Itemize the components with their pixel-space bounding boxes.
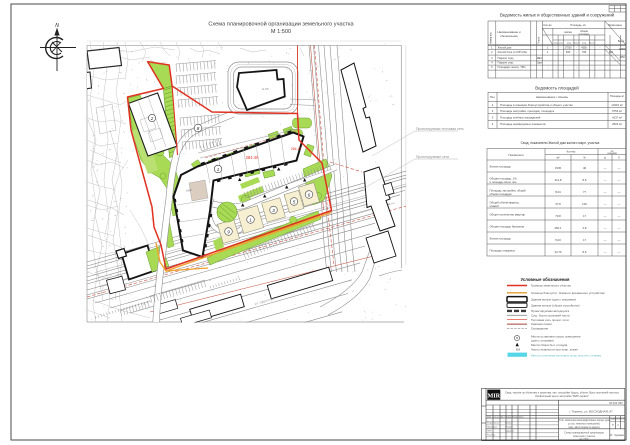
svg-text:Ограждение: Ограждение: [531, 327, 549, 331]
svg-text:211,8: 211,8: [555, 178, 562, 182]
svg-text:Проектируемая автодорога: Проектируемая автодорога: [531, 309, 569, 313]
svg-text:Листов: Листов: [619, 419, 626, 421]
svg-text:06 019 ПЗУ: 06 019 ПЗУ: [609, 401, 623, 405]
svg-text:17: 17: [583, 238, 587, 242]
svg-text:Площадь нормируемых элементов: Площадь нормируемых элементов: [500, 122, 546, 126]
svg-text:—: —: [618, 202, 621, 206]
svg-text:79,8: 79,8: [555, 214, 561, 218]
svg-text:—: —: [604, 226, 607, 230]
svg-text:5: 5: [293, 199, 296, 204]
svg-text:37,8: 37,8: [555, 202, 561, 206]
svg-text:—: —: [604, 166, 607, 170]
svg-text:Свод. чертёж по объектам и про: Свод. чертёж по объектам и проектам, кап…: [505, 391, 619, 395]
svg-text:общ: общ: [582, 43, 586, 45]
svg-text:Площадь зелёных насаждений: Площадь зелёных насаждений: [500, 116, 541, 120]
svg-text:Жилой дом: Жилой дом: [498, 45, 512, 49]
svg-text:-: -: [556, 51, 557, 54]
svg-text:Здания жилые (дом с секциями): Здания жилые (дом с секциями): [531, 298, 576, 302]
svg-text:Всего: Всего: [574, 43, 581, 45]
svg-text:ГИП: ГИП: [487, 431, 492, 433]
svg-text:Площадки технич. ТБО: Площадки технич. ТБО: [498, 65, 526, 69]
svg-text:—: —: [604, 238, 607, 242]
svg-text:М 1:500: М 1:500: [580, 438, 589, 441]
svg-text:2: 2: [150, 116, 154, 121]
svg-text:8: 8: [197, 126, 200, 131]
svg-text:Показатели: Показатели: [508, 153, 523, 157]
svg-text:Примечание: Примечание: [608, 24, 623, 27]
svg-text:объём площадок: объём площадок: [490, 192, 513, 196]
svg-text:Площадь м²: Площадь м²: [610, 95, 624, 98]
svg-text:—: —: [604, 190, 607, 194]
svg-text:Профильный центр застройки "МИ: Профильный центр застройки "МИР-сервис": [535, 394, 589, 398]
svg-text:5,03: 5,03: [555, 238, 561, 242]
svg-text:Н-65: Н-65: [262, 87, 269, 91]
svg-text:Граница благоустр. Элемент вре: Граница благоустр. Элемент временного ус…: [531, 291, 605, 295]
svg-text:Петров: Петров: [505, 427, 513, 429]
svg-text:-: -: [576, 66, 577, 69]
svg-text:Место получения почтовых услуг: Место получения почтовых услуг, высотн. …: [531, 353, 601, 357]
svg-text:Ведомость площадей: Ведомость площадей: [535, 86, 579, 91]
svg-text:-: -: [561, 66, 562, 69]
svg-text:77: 77: [583, 190, 587, 194]
svg-text:г. Тюмень, ул. ВОСХОДНАЯ, 87: г. Тюмень, ул. ВОСХОДНАЯ, 87: [569, 410, 613, 414]
svg-text:-: -: [592, 46, 593, 49]
svg-text:102: 102: [582, 202, 587, 206]
svg-text:6754 м²: 6754 м²: [612, 109, 622, 113]
svg-text:Площадь кладовых: Площадь кладовых: [490, 249, 516, 253]
svg-text:и площадь всего поз.: и площадь всего поз.: [490, 180, 518, 184]
svg-text:—: —: [604, 202, 607, 206]
svg-text:34,76: 34,76: [555, 250, 562, 254]
svg-text:Наименование / объемы: Наименование / объемы: [536, 95, 568, 99]
svg-text:общ: общ: [554, 43, 558, 45]
svg-text:1545: 1545: [555, 166, 562, 170]
svg-text:Жилая площадь: Жилая площадь: [490, 165, 512, 169]
svg-text:—: —: [604, 214, 607, 218]
svg-text:-: -: [547, 66, 548, 69]
svg-text:-: -: [561, 51, 562, 54]
svg-text:1: 1: [249, 217, 252, 222]
svg-text:Проектируемые сети: Проектируемые сети: [416, 155, 449, 159]
svg-text:MIR: MIR: [487, 393, 500, 400]
svg-text:—: —: [618, 250, 621, 254]
svg-text:Проектируемая тепловая сеть: Проектируемая тепловая сеть: [416, 127, 464, 131]
svg-text:-: -: [599, 51, 600, 54]
svg-text:17: 17: [583, 214, 587, 218]
svg-text:—: —: [618, 166, 621, 170]
svg-text:Поз.: Поз.: [490, 95, 496, 99]
svg-text:Паркинг подз.: Паркинг подз.: [498, 56, 515, 60]
svg-text:Жилой блок со КПП 24м: Жилой блок со КПП 24м: [498, 50, 528, 54]
svg-text:Всего: Всего: [589, 43, 596, 45]
svg-text:Всего: Всего: [618, 40, 625, 43]
svg-text:Паркинг откр.: Паркинг откр.: [498, 61, 515, 65]
svg-text:Здания жилые (общее устройство: Здания жилые (общее устройство): [531, 303, 580, 307]
svg-text:-: -: [592, 51, 593, 54]
svg-text:530: 530: [566, 50, 571, 54]
svg-text:Свод. показатели Жилой дом жил: Свод. показатели Жилой дом жилого мкрн. …: [521, 141, 600, 145]
svg-text:9эт: 9эт: [537, 56, 542, 60]
svg-text:4350: 4350: [581, 45, 587, 49]
svg-text:—: —: [604, 250, 607, 254]
svg-text:46: 46: [583, 166, 587, 170]
svg-text:294: 294: [609, 51, 614, 54]
svg-text:И. Чуваев: И. Чуваев: [610, 433, 624, 437]
svg-text:N: N: [55, 23, 59, 29]
svg-text:—: —: [618, 214, 621, 218]
svg-text:-: -: [584, 66, 585, 69]
svg-text:—: —: [618, 178, 621, 182]
svg-text:8,5: 8,5: [583, 250, 587, 254]
svg-text:Площадь, м²: Площадь, м²: [570, 23, 586, 27]
svg-text:м²: м²: [557, 156, 560, 160]
svg-text:Номер поз.: Номер поз.: [490, 31, 493, 44]
svg-text:-: -: [576, 46, 577, 49]
svg-text:Жилая площадь: Жилая площадь: [490, 237, 512, 241]
svg-text:Этажн.: Этажн.: [538, 36, 541, 44]
svg-text:—: —: [618, 190, 621, 194]
svg-text:2,8: 2,8: [583, 226, 587, 230]
svg-text:Сидоров: Сидоров: [505, 431, 515, 433]
svg-text:Н.контр.: Н.контр.: [487, 435, 496, 437]
svg-text:17550: 17550: [619, 48, 626, 51]
svg-text:общ: общ: [567, 43, 571, 45]
svg-text:9: 9: [227, 229, 230, 234]
svg-text:-: -: [599, 46, 600, 49]
svg-text:Общая площадь балконов: Общая площадь балконов: [490, 225, 525, 229]
svg-text:Проверил: Проверил: [487, 427, 498, 429]
svg-text:8,04: 8,04: [555, 190, 561, 194]
svg-text:М 1:500: М 1:500: [271, 29, 291, 35]
svg-text:П: П: [612, 424, 614, 427]
svg-text:Число этажности при этаж. этаж: Число этажности при этаж. этаже: [531, 347, 578, 351]
svg-text:3: 3: [272, 208, 275, 213]
svg-text:секциям: секциям: [607, 152, 617, 155]
svg-text:Площадь в границах благоустрой: Площадь в границах благоустройства и общ…: [500, 103, 573, 107]
svg-text:795: 795: [582, 50, 587, 54]
svg-text:-: -: [599, 66, 600, 69]
svg-text:284.40: 284.40: [246, 155, 259, 160]
svg-text:подз. автостоянки по адресу: подз. автостоянки по адресу: [568, 426, 600, 429]
svg-text:1эт: 1эт: [537, 61, 542, 65]
svg-text:-: -: [561, 46, 562, 49]
svg-text:Разработал: Разработал: [487, 423, 500, 425]
svg-text:Ведомость жилых и общественных: Ведомость жилых и общественных зданий и …: [500, 13, 615, 18]
svg-text:Общее количество квартир: Общее количество квартир: [490, 213, 526, 217]
svg-text:—: —: [604, 178, 607, 182]
svg-text:Граница земельного участка: Граница земельного участка: [531, 284, 571, 288]
svg-text:6: 6: [308, 192, 311, 197]
svg-text:Кол-во: Кол-во: [567, 150, 576, 154]
svg-text:Красная линия: Красная линия: [531, 322, 552, 326]
svg-text:4137 м²: 4137 м²: [612, 116, 622, 120]
svg-text:Сущ. борта проезжей части: Сущ. борта проезжей части: [531, 313, 570, 317]
svg-text:8,5: 8,5: [583, 178, 587, 182]
svg-text:250,1: 250,1: [555, 226, 562, 230]
svg-text:Площадь застройки, проездов, п: Площадь застройки, проездов, площадок: [500, 109, 555, 113]
svg-text:площадь: площадь: [579, 33, 590, 36]
svg-text:(дом с опорами): (дом с опорами): [531, 338, 554, 342]
svg-text:Схема планировочной организаци: Схема планировочной организации земельно…: [208, 21, 354, 28]
svg-text:Тепловая сеть проект. сети: Тепловая сеть проект. сети: [531, 318, 569, 322]
svg-text:—: —: [618, 238, 621, 242]
svg-text:8.8: 8.8: [516, 348, 520, 352]
svg-text:4350: 4350: [619, 56, 625, 59]
svg-text:Иванов: Иванов: [505, 423, 513, 425]
svg-text:-: -: [576, 51, 577, 54]
svg-text:Кол-во: Кол-во: [543, 23, 552, 27]
svg-text:Условные обозначения: Условные обозначения: [521, 277, 570, 282]
svg-text:-: -: [592, 66, 593, 69]
svg-text:жилая: жилая: [564, 31, 572, 34]
svg-text:13415 м²: 13415 м²: [611, 103, 622, 107]
svg-text:этажей: этажей: [490, 204, 500, 208]
svg-text:284.10: 284.10: [291, 147, 301, 151]
svg-text:Места сбора быт. отходов: Места сбора быт. отходов: [531, 343, 568, 347]
svg-text:обозначение: обозначение: [500, 34, 518, 38]
svg-text:Изм. Кол.уч. Лист №док. Подп: Изм. Кол.уч. Лист №док. Подп. Дата: [487, 416, 524, 419]
svg-text:-: -: [556, 46, 557, 49]
svg-text:-: -: [556, 66, 557, 69]
svg-text:-: -: [568, 66, 569, 69]
svg-text:2524 м²: 2524 м²: [612, 122, 622, 126]
svg-text:17550: 17550: [564, 45, 572, 49]
svg-text:—: —: [618, 226, 621, 230]
